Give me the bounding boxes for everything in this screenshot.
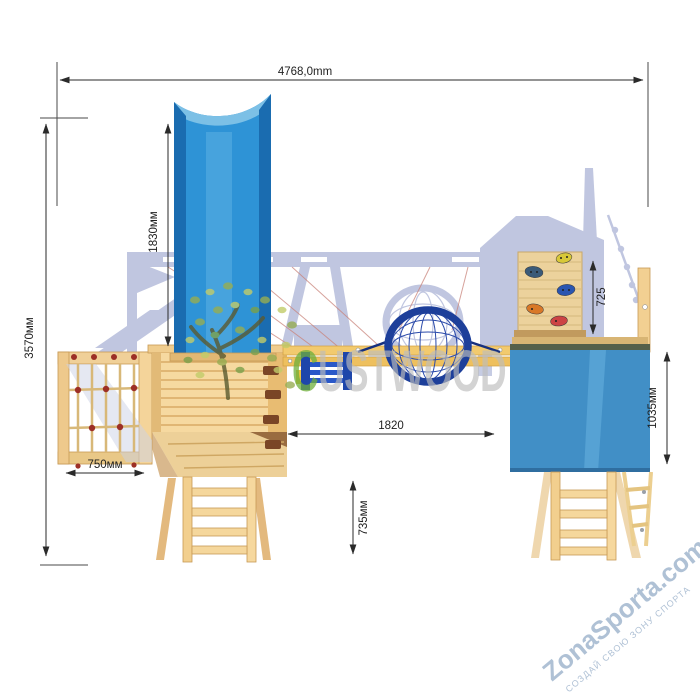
dimension-label-slide-height: 1830мм <box>148 211 160 252</box>
dimension-label-overall-height: 3570мм <box>24 317 36 358</box>
dimension-overall-width: 4768,0mm <box>57 62 648 207</box>
svg-text:CUSTWOOD: CUSTWOOD <box>292 339 506 404</box>
brand-watermark-rest: USTWOOD <box>318 339 506 404</box>
dimension-label-ladder-height: 735мм <box>358 500 370 535</box>
dimension-label-net-width: 750мм <box>88 459 123 471</box>
dimension-label-tower-span: 1820 <box>378 420 404 432</box>
climbing-wall <box>514 251 586 340</box>
right-tower-tarp <box>510 350 650 472</box>
left-tower <box>148 345 289 477</box>
dimension-label-wall-height: 725 <box>596 287 608 306</box>
climb-net <box>58 352 152 469</box>
dimension-tower-span: 1820 <box>288 420 494 434</box>
site-watermark: ZonaSporta.com СОЗДАЙ СВОЮ ЗОНУ СПОРТА <box>537 532 700 698</box>
dimension-overall-height: 3570мм <box>24 118 88 565</box>
dimension-ladder-height: 735мм <box>353 481 370 554</box>
brand-watermark: CUSTWOOD <box>292 339 506 404</box>
playground-drawing-canvas: CUSTWOOD 4768,0mm 3570мм 1830мм 750мм <box>0 0 700 700</box>
silhouette-left-post <box>127 258 137 352</box>
dimension-label-right-tower-height: 1035мм <box>647 387 659 428</box>
brand-watermark-initial: C <box>292 339 318 404</box>
left-ladder <box>156 477 271 562</box>
playground-drawing: CUSTWOOD 4768,0mm 3570мм 1830мм 750мм <box>0 0 700 700</box>
dimension-label-overall-width: 4768,0mm <box>278 66 332 78</box>
